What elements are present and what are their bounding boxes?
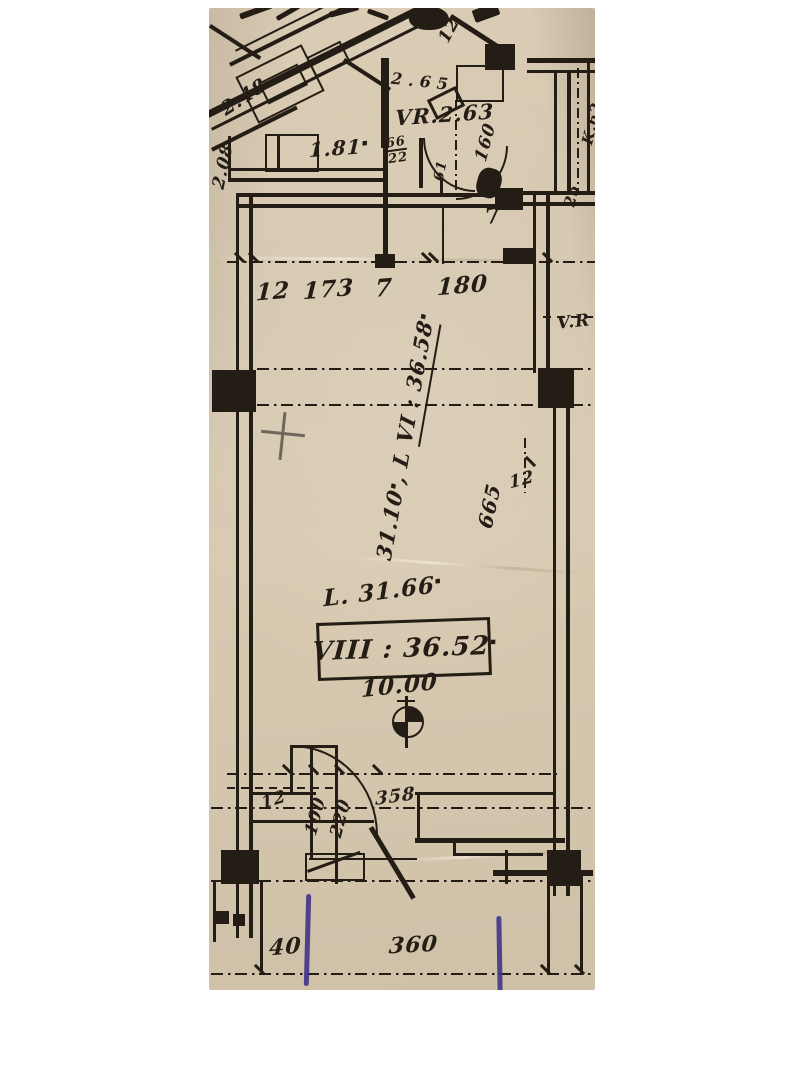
label-viii-area: VIII : 36.52▪ bbox=[311, 633, 498, 666]
door-jamb bbox=[419, 138, 423, 188]
label-area-3110: 31.10 bbox=[371, 486, 407, 563]
section-line bbox=[571, 404, 595, 406]
label-vr-right: V.R bbox=[556, 312, 591, 332]
label-k62: K.62 bbox=[580, 101, 595, 146]
label-l-area: L. 31.66▪ bbox=[323, 573, 442, 611]
label-area-comma-l: , L bbox=[385, 439, 416, 486]
handwriting-scribble bbox=[329, 8, 360, 18]
pier-block bbox=[538, 368, 574, 408]
label-dim-12-right: 12 bbox=[508, 469, 535, 493]
label-room-area-rotated: 31.10▪, L VI : 36.58▪ bbox=[371, 296, 440, 578]
label-area-181: 1.81▪ bbox=[309, 136, 369, 160]
wall-segment bbox=[236, 204, 501, 208]
wall-segment bbox=[236, 193, 501, 197]
handwriting-scribble bbox=[239, 8, 273, 20]
dimension-line bbox=[227, 773, 557, 775]
wall-segment bbox=[554, 70, 557, 195]
door-leaf bbox=[369, 826, 416, 900]
wall-segment bbox=[415, 838, 565, 843]
pencil-cross bbox=[278, 412, 286, 460]
wall-segment bbox=[546, 193, 550, 373]
pier-block bbox=[547, 850, 581, 886]
wall-segment bbox=[553, 404, 556, 896]
label-topdim-7: 7 bbox=[374, 275, 393, 301]
dimension-tick bbox=[525, 456, 536, 467]
label-topdim-12: 12 bbox=[255, 278, 290, 304]
step-outline bbox=[453, 853, 543, 856]
wall-segment bbox=[580, 875, 583, 975]
wall-segment bbox=[260, 882, 263, 975]
wall-segment bbox=[228, 178, 386, 182]
survey-marker-axis bbox=[397, 700, 415, 702]
wall-segment bbox=[249, 193, 253, 938]
label-ten: 10.00 bbox=[361, 670, 438, 701]
label-door-358: 358 bbox=[375, 785, 415, 809]
label-topdim-173: 173 bbox=[302, 276, 354, 304]
label-door-66: 66 bbox=[385, 135, 407, 151]
label-dim-265: 2.65 bbox=[390, 71, 454, 93]
wall-segment bbox=[417, 792, 420, 840]
wall-stub bbox=[215, 911, 229, 924]
wall-segment bbox=[527, 58, 595, 63]
section-line bbox=[571, 368, 595, 370]
wall-segment bbox=[442, 204, 444, 264]
handwriting-scribble bbox=[472, 8, 501, 23]
label-dim-665: 665 bbox=[475, 481, 503, 531]
label-topdim-180: 180 bbox=[436, 272, 488, 300]
fixture-divider bbox=[277, 134, 280, 168]
m2-symbol: ▪ bbox=[362, 138, 369, 149]
survey-marker-axis bbox=[405, 696, 408, 748]
label-bottom-360: 360 bbox=[388, 933, 439, 958]
blue-pen-stroke bbox=[496, 916, 502, 990]
handwriting-scribble bbox=[367, 8, 389, 20]
wall-segment bbox=[533, 193, 536, 373]
m2-symbol: ▪ bbox=[489, 637, 497, 647]
label-l-area-value: L. 31.66 bbox=[323, 572, 435, 613]
m2-symbol: ▪ bbox=[435, 576, 442, 587]
label-area-181-value: 1.81 bbox=[309, 134, 362, 162]
wall-segment bbox=[381, 58, 389, 148]
label-area-vi-3658: VI : 36.58 bbox=[392, 317, 442, 447]
label-bottom-40: 40 bbox=[268, 934, 302, 959]
wall-segment bbox=[527, 70, 595, 73]
arrow-line bbox=[440, 180, 443, 196]
wall-segment bbox=[236, 193, 239, 938]
dimension-line bbox=[227, 261, 595, 263]
wall-segment bbox=[547, 884, 550, 975]
label-viii-value: VIII : 36.52 bbox=[311, 631, 491, 667]
floor-plan-photo: 2.48 2.08 1.81▪ VR.2.63 160 66 22 61 12 … bbox=[209, 8, 595, 990]
survey-marker-icon bbox=[392, 706, 424, 738]
fixture-rect bbox=[456, 65, 504, 102]
wall-stub bbox=[233, 914, 245, 926]
wall-segment bbox=[383, 148, 388, 268]
pier-block bbox=[221, 850, 259, 884]
dash-line bbox=[577, 68, 579, 193]
section-line bbox=[257, 368, 537, 370]
pier-block bbox=[212, 370, 256, 412]
wall-segment bbox=[415, 792, 555, 795]
wall-segment bbox=[566, 404, 570, 896]
section-line bbox=[211, 880, 593, 882]
wall-segment bbox=[567, 70, 571, 195]
label-door-66-22: 66 22 bbox=[385, 135, 409, 167]
wall-segment bbox=[505, 850, 508, 884]
dimension-line bbox=[211, 973, 593, 975]
